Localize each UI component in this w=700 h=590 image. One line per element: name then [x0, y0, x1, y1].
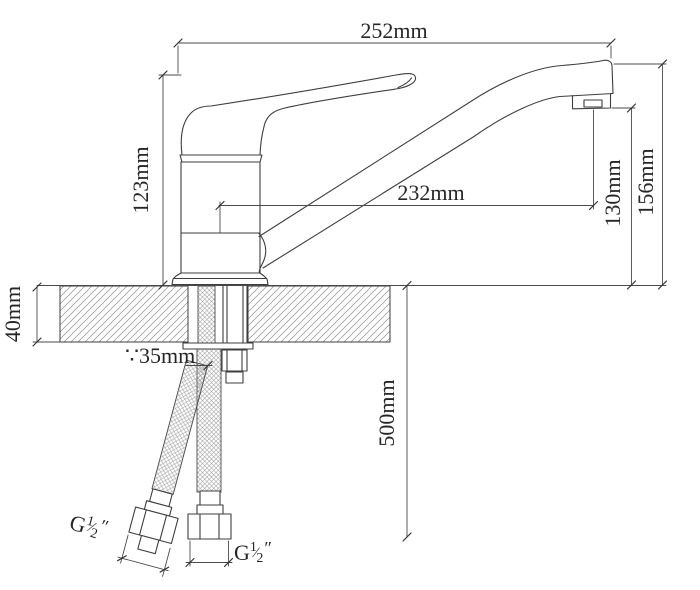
countertop-hatch-left [60, 286, 188, 342]
dimension-deck-thickness: 40mm [0, 283, 41, 346]
mounting-nut [222, 350, 247, 371]
label-overall-width: 252mm [360, 18, 427, 43]
faucet-technical-drawing: 252mm 123mm 232mm 130mm 156mm [0, 0, 700, 590]
faucet-collar [180, 155, 262, 162]
label-spout-height: 156mm [633, 148, 658, 215]
faucet-body [172, 60, 613, 284]
mounting-shank [223, 286, 247, 343]
thread-left-unit: ″ [98, 516, 110, 537]
dimension-spout-reach: 232mm [216, 110, 598, 233]
label-hole-diameter: ∵35mm [125, 343, 195, 368]
dimension-outlet-height: 130mm [600, 104, 636, 289]
hose-collar-vertical [197, 505, 223, 514]
hose-ferrule-vertical [200, 491, 220, 505]
label-thread-right: G1⁄2″ [234, 538, 272, 566]
label-body-height: 123mm [128, 146, 153, 213]
hose-nut-vertical [188, 514, 231, 539]
thread-right-denominator: 2 [256, 551, 263, 566]
drawing-svg: 252mm 123mm 232mm 130mm 156mm [0, 0, 700, 590]
thread-right-unit: ″ [264, 538, 272, 558]
label-deck-thickness: 40mm [0, 286, 25, 342]
faucet-cartridge-body [181, 162, 260, 273]
dimension-body-height: 123mm [128, 71, 181, 289]
thread-right-prefix: G [234, 540, 250, 565]
label-outlet-height: 130mm [600, 159, 625, 226]
dimension-thread-right: G1⁄2″ [186, 538, 272, 567]
countertop-section [33, 286, 666, 343]
countertop-hatch-right [248, 286, 390, 342]
flex-hose-in-hole [198, 286, 215, 343]
label-hose-length: 500mm [374, 379, 399, 446]
aerator-insert [584, 100, 602, 107]
mounting-nut-tail [226, 372, 243, 383]
lever-handle [181, 74, 415, 155]
label-thread-left: G1⁄2″ [67, 508, 111, 545]
label-spout-reach: 232mm [397, 180, 464, 205]
dimension-thread-left: G1⁄2″ [67, 508, 111, 545]
dimension-overall-width: 252mm [174, 18, 615, 73]
